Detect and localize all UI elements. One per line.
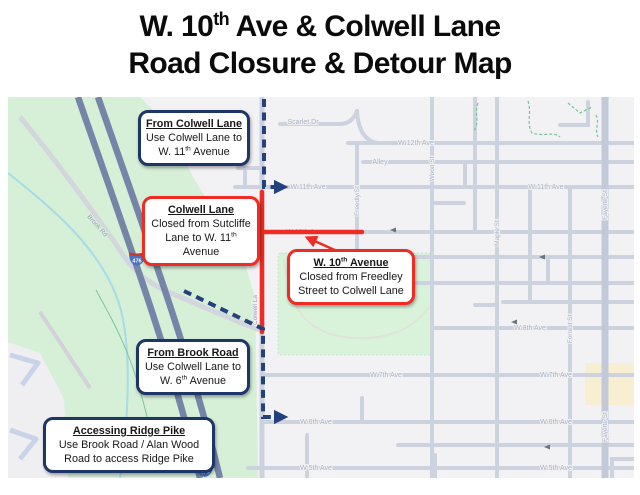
callout-text: W. 6 bbox=[160, 375, 182, 387]
street-label: W 7th Ave bbox=[370, 372, 402, 379]
title-line1: W. 10th Ave & Colwell Lane bbox=[140, 10, 501, 43]
callout-text: Avenue bbox=[183, 246, 219, 258]
callout-from-brook-road: From Brook Road Use Colwell Lane toW. 6t… bbox=[136, 339, 250, 395]
road-closure-flyer: W. 10th Ave & Colwell Lane Road Closure … bbox=[0, 0, 640, 495]
callout-body: Closed from SutcliffeLane to W. 11th Ave… bbox=[148, 217, 254, 259]
callout-title: W. 10th Avenue bbox=[293, 256, 409, 270]
street-label: W 6th Ave bbox=[540, 419, 572, 426]
callout-text: Road to access Ridge Pike bbox=[64, 453, 194, 465]
callout-text: Use Brook Road / Alan Wood bbox=[59, 439, 199, 451]
svg-text:476: 476 bbox=[132, 259, 141, 265]
callout-body: Use Colwell Lane toW. 6th Avenue bbox=[142, 360, 244, 388]
title-line1-sup: th bbox=[213, 9, 229, 29]
detour-map: Scarlet Dr W 12th Ave Alley W 11th Ave W… bbox=[8, 97, 634, 478]
callout-text: Closed from Freedley bbox=[299, 271, 402, 283]
callout-text: Use Colwell Lane to bbox=[146, 132, 242, 144]
street-label: Forrest St bbox=[567, 315, 574, 344]
callout-body: Use Colwell Lane toW. 11th Avenue bbox=[144, 131, 244, 159]
callout-text: Lane to W. 11 bbox=[165, 232, 231, 244]
callout-text: Avenue bbox=[187, 375, 226, 387]
callout-text: W. 11 bbox=[158, 146, 185, 158]
street-label: W 5th Ave bbox=[300, 465, 332, 472]
street-label: Maple St bbox=[494, 220, 501, 246]
street-label: W 11th Ave bbox=[528, 184, 563, 191]
callout-body: Use Brook Road / Alan WoodRoad to access… bbox=[49, 438, 209, 466]
street-label: W 7th Ave bbox=[540, 372, 572, 379]
street-label: Alley bbox=[372, 159, 388, 166]
callout-text: Use Colwell Lane to bbox=[145, 361, 241, 373]
street-label: W 11th Ave bbox=[290, 184, 325, 191]
callout-from-colwell-lane: From Colwell Lane Use Colwell Lane toW. … bbox=[138, 110, 250, 166]
callout-w10th-ave-closure: W. 10th Avenue Closed from FreedleyStree… bbox=[287, 249, 415, 305]
street-label: Colwell La bbox=[252, 295, 259, 325]
street-label: W 5th Ave bbox=[540, 465, 572, 472]
title-line1-post: Ave & Colwell Lane bbox=[229, 10, 500, 43]
street-label: Freedly St bbox=[354, 186, 361, 216]
street-label: W 8th Ave bbox=[514, 325, 546, 332]
street-label: Wood St bbox=[429, 156, 436, 181]
callout-body: Closed from FreedleyStreet to Colwell La… bbox=[293, 270, 409, 298]
street-label: Scarlet Dr bbox=[287, 119, 319, 126]
commercial-zone bbox=[585, 363, 634, 405]
callout-title: From Colwell Lane bbox=[144, 117, 244, 131]
callout-text: W. 10 bbox=[313, 257, 341, 269]
callout-sup: th bbox=[231, 231, 237, 238]
page-title: W. 10th Ave & Colwell Lane Road Closure … bbox=[0, 8, 640, 82]
callout-title: Colwell Lane bbox=[148, 203, 254, 217]
callout-text: Avenue bbox=[191, 146, 230, 158]
title-line2: Road Closure & Detour Map bbox=[128, 47, 511, 80]
callout-text: Avenue bbox=[347, 257, 388, 269]
street-label: W 12th Ave bbox=[398, 140, 434, 147]
callout-text: Street to Colwell Lane bbox=[298, 285, 404, 297]
callout-accessing-ridge-pike: Accessing Ridge Pike Use Brook Road / Al… bbox=[43, 417, 215, 473]
street-label: Fayette St bbox=[602, 412, 609, 442]
street-label: W 6th Ave bbox=[300, 419, 332, 426]
street-label: Fayette St bbox=[602, 190, 609, 220]
title-line1-pre: W. 10 bbox=[140, 10, 214, 43]
callout-colwell-lane-closure: Colwell Lane Closed from SutcliffeLane t… bbox=[142, 196, 260, 266]
callout-title: From Brook Road bbox=[142, 346, 244, 360]
callout-title: Accessing Ridge Pike bbox=[49, 424, 209, 438]
callout-text: Closed from Sutcliffe bbox=[151, 218, 250, 230]
